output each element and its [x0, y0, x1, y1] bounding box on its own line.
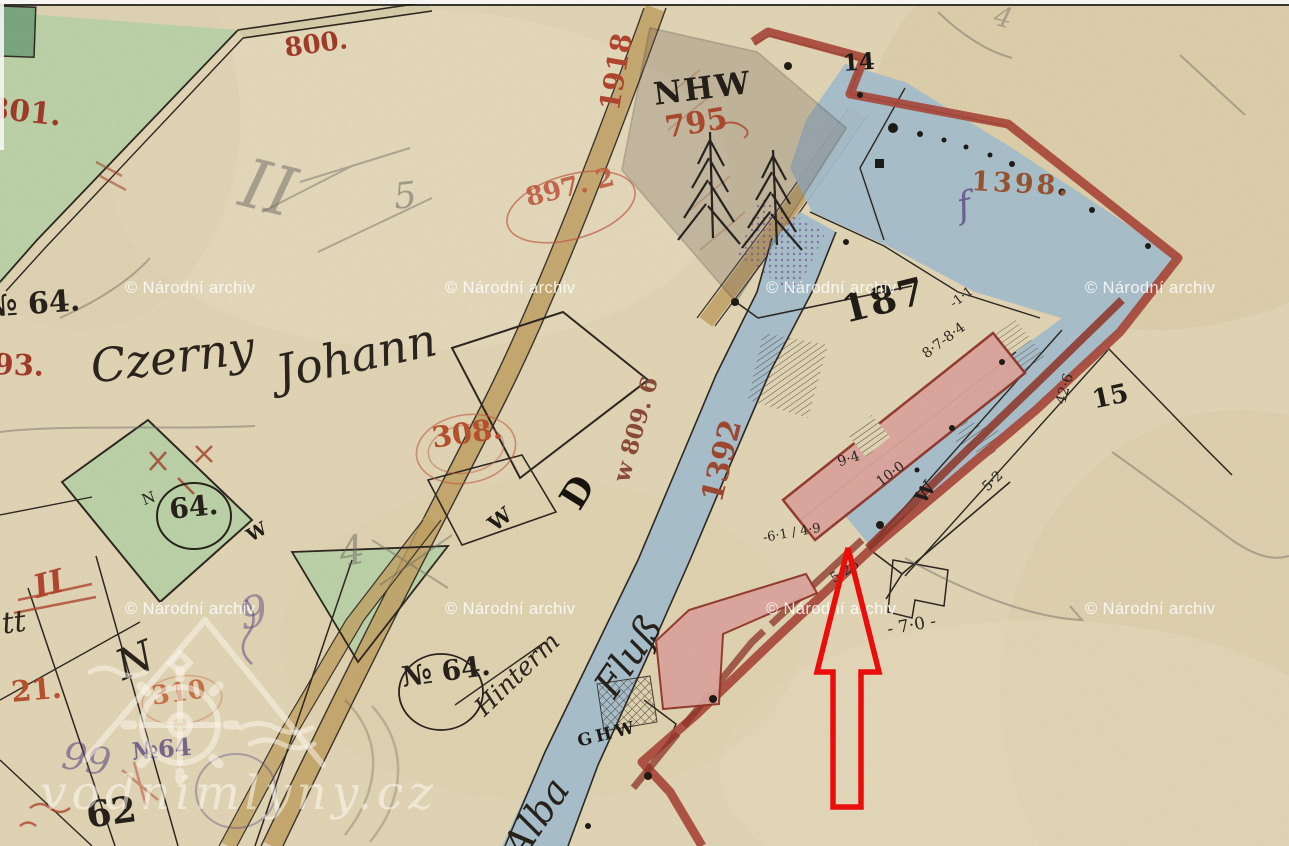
scan-frame-left: [0, 0, 4, 150]
map-canvas[interactable]: 800.301.1918897. 2NHW795141398.187151392…: [0, 0, 1289, 846]
scan-frame-line: [0, 4, 1289, 6]
annotation-arrow: [0, 0, 1289, 846]
